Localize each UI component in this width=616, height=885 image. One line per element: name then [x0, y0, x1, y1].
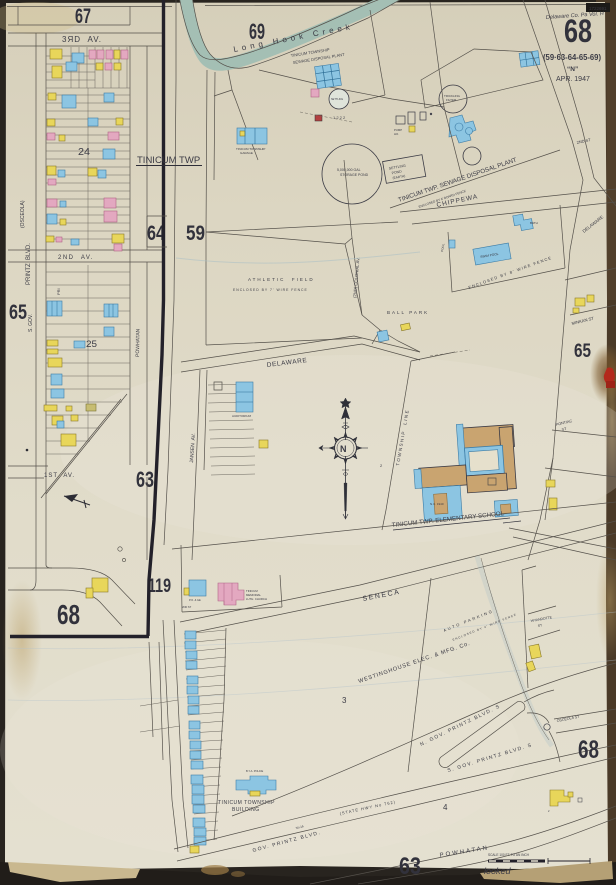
- svg-text:BUILDING: BUILDING: [232, 807, 260, 813]
- svg-text:TINICUM TWP: TINICUM TWP: [137, 155, 200, 166]
- svg-text:BALL PARK: BALL PARK: [387, 310, 429, 315]
- svg-text:ST: ST: [537, 623, 542, 628]
- svg-text:65: 65: [574, 341, 591, 362]
- svg-text:GARAGE: GARAGE: [240, 151, 253, 155]
- svg-text:65: 65: [9, 301, 27, 324]
- svg-text:3: 3: [342, 696, 347, 705]
- svg-text:63: 63: [136, 467, 154, 492]
- svg-text:ENCLOSED BY 7' WIRE FENCE: ENCLOSED BY 7' WIRE FENCE: [233, 288, 308, 292]
- svg-text:3ЯD AV.: 3ЯD AV.: [62, 35, 102, 44]
- svg-text:ATHLETIC FIELD: ATHLETIC FIELD: [248, 277, 315, 282]
- svg-text:N: N: [340, 444, 347, 454]
- svg-text:SCALE 100 FT. TO AN INCH: SCALE 100 FT. TO AN INCH: [488, 853, 530, 857]
- svg-text:1722691: 1722691: [589, 6, 607, 11]
- svg-text:P.O. & GE: P.O. & GE: [189, 598, 201, 602]
- svg-text:“N”: “N”: [567, 66, 578, 73]
- svg-text:4: 4: [443, 803, 448, 812]
- svg-text:2ND AV.: 2ND AV.: [58, 255, 94, 261]
- svg-text:BATH: BATH: [530, 221, 538, 225]
- svg-text:looked: looked: [484, 866, 512, 876]
- svg-text:STORAGE POND: STORAGE POND: [340, 173, 369, 177]
- svg-text:68: 68: [57, 599, 80, 630]
- svg-text:1 2 2 2: 1 2 2 2: [333, 115, 346, 120]
- svg-text:(OSCEOLA): (OSCEOLA): [20, 200, 26, 228]
- svg-text:APR. 1947: APR. 1947: [556, 76, 590, 83]
- svg-text:67: 67: [75, 5, 91, 28]
- svg-text:POWHATAN: POWHATAN: [135, 328, 141, 357]
- svg-text:AUDITORIUM: AUDITORIUM: [232, 414, 251, 418]
- svg-text:LUTH. CHURCH: LUTH. CHURCH: [246, 597, 267, 601]
- svg-text:(59·63-64-65-69): (59·63-64-65-69): [543, 53, 601, 62]
- svg-text:68: 68: [564, 13, 592, 49]
- svg-text:1ST AV.: 1ST AV.: [44, 473, 75, 479]
- svg-text:SETTLING: SETTLING: [331, 98, 343, 101]
- svg-text:N.C. 1940: N.C. 1940: [430, 502, 444, 506]
- svg-text:25: 25: [86, 339, 97, 349]
- svg-text:S. GOV.: S. GOV.: [28, 314, 34, 332]
- svg-text:119: 119: [148, 576, 171, 597]
- svg-text:68: 68: [578, 736, 599, 764]
- svg-text:B.Y.A. POLICE: B.Y.A. POLICE: [246, 769, 264, 773]
- svg-text:PRI: PRI: [56, 288, 61, 295]
- svg-text:63: 63: [399, 853, 421, 880]
- svg-text:5,000,000 GAL: 5,000,000 GAL: [337, 168, 361, 172]
- svg-text:2ND ST: 2ND ST: [182, 605, 192, 609]
- svg-text:TINICUM TOWNSHIP: TINICUM TOWNSHIP: [218, 800, 275, 806]
- svg-text:24: 24: [78, 147, 90, 158]
- svg-text:HO.: HO.: [394, 132, 399, 136]
- svg-text:PRINTZ BLVD.: PRINTZ BLVD.: [26, 243, 32, 285]
- svg-text:59: 59: [186, 222, 205, 245]
